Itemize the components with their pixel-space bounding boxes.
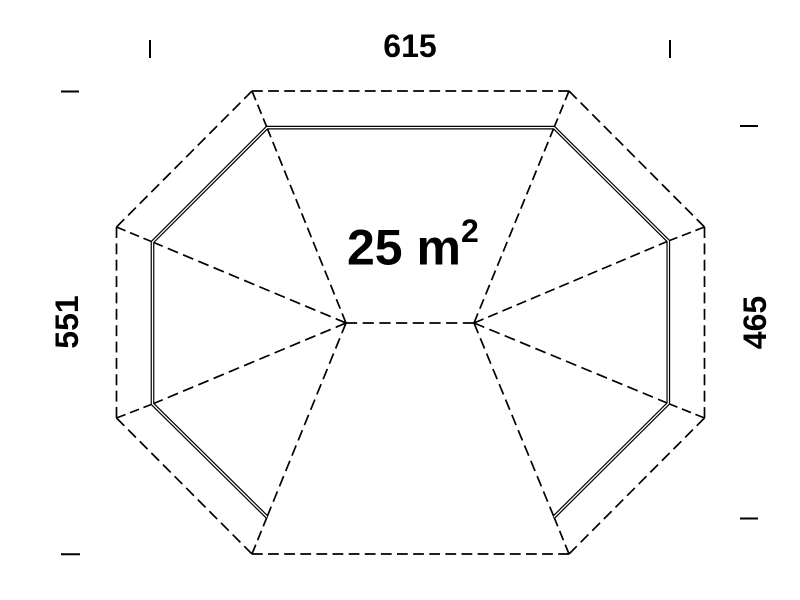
- svg-text:615: 615: [383, 28, 436, 64]
- svg-text:465: 465: [737, 296, 773, 349]
- svg-text:25 m2: 25 m2: [347, 213, 479, 276]
- svg-text:551: 551: [49, 295, 85, 348]
